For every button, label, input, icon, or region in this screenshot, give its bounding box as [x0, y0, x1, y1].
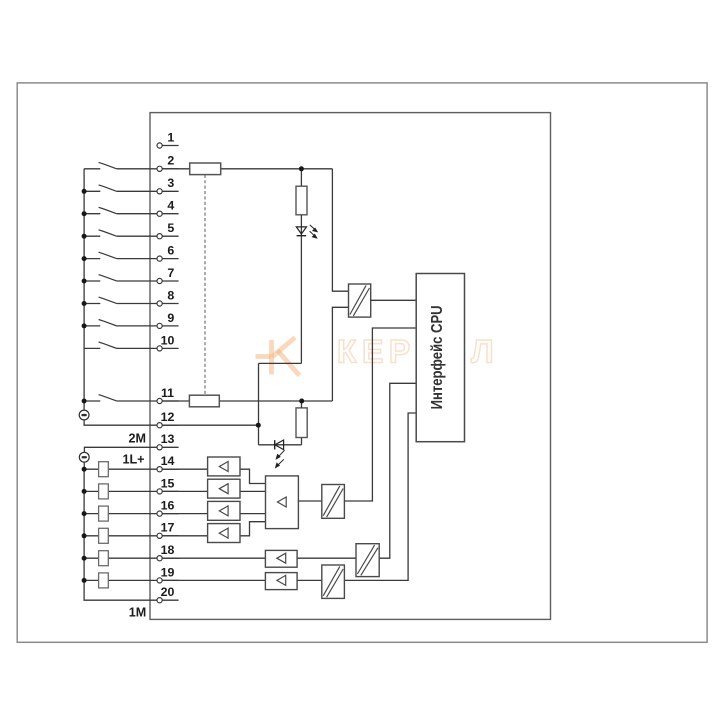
svg-text:15: 15 [161, 476, 175, 490]
svg-text:14: 14 [161, 454, 175, 468]
svg-text:7: 7 [167, 266, 174, 280]
svg-text:9: 9 [167, 311, 174, 325]
svg-text:2M: 2M [129, 431, 147, 445]
svg-text:13: 13 [161, 432, 175, 446]
svg-text:17: 17 [161, 521, 175, 535]
svg-text:Интерфейс CPU: Интерфейс CPU [429, 305, 446, 409]
svg-text:8: 8 [167, 288, 174, 302]
svg-text:1M: 1M [129, 605, 147, 619]
svg-text:2: 2 [167, 154, 174, 168]
svg-text:18: 18 [161, 543, 175, 557]
svg-text:1: 1 [167, 130, 174, 144]
svg-text:10: 10 [161, 333, 175, 347]
svg-text:19: 19 [161, 565, 175, 579]
svg-text:1L+: 1L+ [122, 452, 144, 466]
svg-text:3: 3 [167, 176, 174, 190]
svg-text:5: 5 [167, 221, 174, 235]
svg-text:4: 4 [167, 199, 174, 213]
svg-text:6: 6 [167, 244, 174, 258]
svg-text:20: 20 [161, 585, 175, 599]
svg-text:12: 12 [161, 410, 175, 424]
svg-text:16: 16 [161, 499, 175, 513]
svg-text:11: 11 [161, 386, 174, 400]
